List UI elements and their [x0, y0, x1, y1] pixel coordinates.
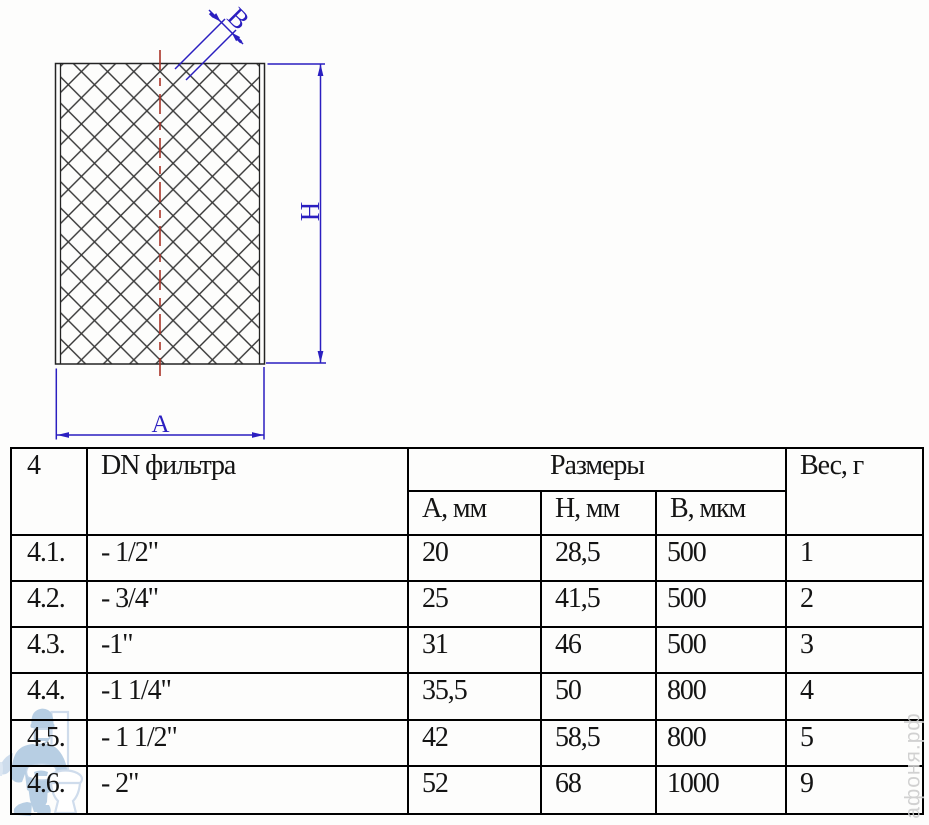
svg-text:A: A [151, 411, 169, 438]
svg-text:H: H [295, 202, 325, 222]
svg-text:B: B [222, 2, 256, 36]
